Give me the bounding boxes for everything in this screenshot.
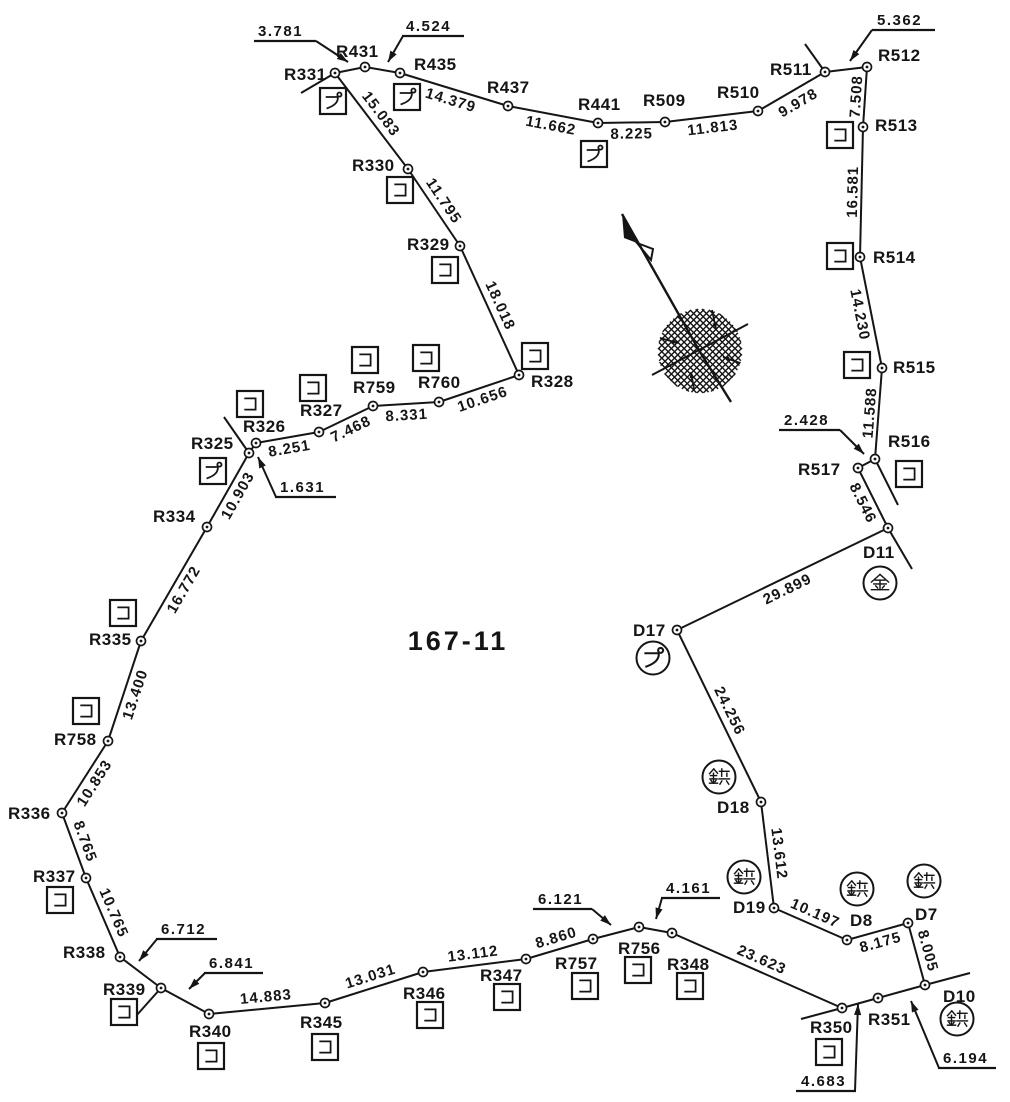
leader-arrow-icon [854,1004,861,1015]
survey-point-center-dot [318,431,321,434]
survey-point-center-dot [119,956,122,959]
point-label-R334: R334 [153,507,196,526]
leader-value: 6.712 [161,921,206,938]
survey-point-center-dot [773,907,776,910]
point-label-R347: R347 [480,966,523,985]
marker-box-ko-icon [110,600,136,626]
survey-point-center-dot [518,374,521,377]
survey-point-center-dot [160,987,163,990]
point-label-R758: R758 [54,730,97,749]
point-label-D11: D11 [863,543,895,562]
point-label-R337: R337 [33,867,76,886]
leader-annotation: 2.428 [779,412,864,454]
marker-box-ko-icon [352,347,378,373]
parcel-number: 167-11 [408,626,509,656]
survey-point-center-dot [671,932,674,935]
marker-box-ko-icon [111,999,137,1025]
distance-label-D8-D7: 8.175 [858,929,904,957]
survey-point-center-dot [248,452,251,455]
survey-point-center-dot [859,256,862,259]
survey-point-center-dot [857,467,860,470]
marker-frame [941,1003,974,1036]
point-label-D7: D7 [915,905,938,924]
marker-circle-byo-icon [728,861,761,894]
survey-points: R331R431R435R437R441R509R510R511R512R513… [8,42,976,1041]
marker-box-pu-icon [581,141,607,167]
leader-annotation: 6.841 [189,955,263,989]
marker-box-ko-icon [522,343,548,369]
marker-frame [198,1043,224,1069]
survey-point-center-dot [206,526,209,529]
point-label-R340: R340 [189,1022,232,1041]
marker-frame [417,1002,443,1028]
point-label-R330: R330 [352,156,395,175]
marker-glyph-byo [740,880,741,882]
point-label-R512: R512 [878,46,921,65]
point-label-R431: R431 [336,42,379,61]
marker-box-ko-icon [413,345,439,371]
survey-point-center-dot [507,105,510,108]
marker-frame [572,973,598,999]
survey-point-center-dot [597,122,600,125]
survey-point-center-dot [107,740,110,743]
marker-glyph-byo [849,892,850,894]
distance-label-R347-R346: 13.112 [447,942,500,965]
point-label-R513: R513 [875,116,918,135]
traverse-lines [62,44,970,1019]
survey-point-center-dot [887,527,890,530]
point-label-R346: R346 [403,984,446,1003]
point-label-R509: R509 [643,91,686,110]
leader-value: 6.194 [943,1050,988,1067]
leader-value: 6.121 [538,891,583,908]
marker-box-ko-icon [625,957,651,983]
survey-point-center-dot [846,939,849,942]
leader-arrow-icon [656,907,663,919]
marker-box-ko-icon [432,257,458,283]
marker-frame [394,84,420,110]
marker-box-ko-icon [312,1034,338,1060]
point-label-R348: R348 [667,955,710,974]
leader-annotation: 4.161 [656,880,720,919]
distance-label-R513-R514: 16.581 [844,166,862,218]
point-label-R325: R325 [191,434,234,453]
marker-circle-byo-icon [908,865,941,898]
point-label-R515: R515 [893,358,936,377]
point-label-R757: R757 [555,954,598,973]
marker-box-ko-icon [47,887,73,913]
point-label-D8: D8 [850,911,873,930]
distance-label-R759-R760: 8.331 [385,406,428,426]
point-label-R756: R756 [618,939,661,958]
marker-frame [110,600,136,626]
leader-value: 4.683 [801,1073,846,1090]
traverse-line-R351-R350 [842,998,878,1008]
leader-arrow-icon [258,457,266,469]
distance-label-D7-D10: 8.005 [914,928,942,974]
marker-box-ko-icon [816,1039,842,1065]
marker-glyph-byo [916,884,917,886]
survey-point-center-dot [907,922,910,925]
marker-glyph-byo [949,1022,950,1024]
leader-annotation: 1.631 [258,457,336,497]
survey-point-center-dot [438,401,441,404]
point-label-D17: D17 [633,621,666,640]
marker-circle-pu-icon [637,642,670,675]
north-arrow-flag [637,243,653,260]
marker-box-ko-icon [237,391,263,417]
leader-value: 4.161 [666,880,711,897]
leader-value: 2.428 [784,412,829,429]
north-arrow [622,214,748,402]
point-label-R517: R517 [798,460,841,479]
survey-point-center-dot [824,71,827,74]
point-label-R336: R336 [8,804,51,823]
marker-frame [200,458,226,484]
point-label-R331: R331 [284,65,327,84]
marker-frame [413,345,439,371]
survey-point-center-dot [877,997,880,1000]
point-label-R441: R441 [578,95,621,114]
marker-frame [494,984,520,1010]
point-label-R511: R511 [770,60,812,79]
survey-point-center-dot [664,121,667,124]
survey-point-center-dot [364,66,367,69]
point-label-R339: R339 [103,980,146,999]
marker-box-pu-icon [320,88,346,114]
marker-box-ko-icon [827,122,853,148]
marker-frame [703,761,736,794]
marker-frame [387,177,413,203]
distance-label-R509-R510: 11.813 [686,116,739,139]
marker-circle-byo-icon [703,761,736,794]
distance-label-R757-R347: 8.860 [533,924,579,952]
traverse-line-R441-R509 [598,122,665,123]
marker-glyph-byo [853,892,854,894]
survey-point-center-dot [399,72,402,75]
point-label-R328: R328 [531,372,574,391]
distance-label-R514-R515: 14.230 [846,288,873,342]
distance-label-R345-R340: 14.883 [239,986,292,1008]
point-label-D19: D19 [733,898,766,917]
marker-box-ko-icon [73,698,99,724]
cadastral-survey-map-page: 14.37911.6628.22511.8139.9787.50816.5811… [0,0,1010,1102]
point-label-R345: R345 [300,1013,343,1032]
marker-circle-kin-icon [864,567,897,600]
marker-box-ko-icon [844,352,870,378]
survey-point-center-dot [760,801,763,804]
boundary-spur-line [925,973,970,985]
marker-frame [827,122,853,148]
point-label-D18: D18 [717,798,750,817]
point-label-R759: R759 [353,378,396,397]
marker-frame [827,243,853,269]
survey-point-center-dot [459,245,462,248]
traverse-line-R759-R760 [373,402,439,406]
survey-point-center-dot [407,168,410,171]
distance-label-R510-R511: 9.978 [776,85,821,121]
leader-value: 6.841 [209,955,254,972]
distance-label-R337-R336: 8.765 [69,819,100,865]
survey-point-center-dot [757,110,760,113]
leader-arrow-icon [850,50,859,61]
leader-annotation: 6.712 [139,921,217,961]
leader-value: 5.362 [877,12,922,29]
point-label-R510: R510 [717,83,760,102]
point-label-R351: R351 [868,1010,911,1029]
survey-point-center-dot [85,877,88,880]
marker-frame [320,88,346,114]
marker-frame [581,141,607,167]
north-arrow-shaft [622,214,700,352]
leader-arrow-icon [388,51,397,62]
marker-frame [841,873,874,906]
marker-box-pu-icon [200,458,226,484]
marker-frame [637,642,670,675]
point-label-R437: R437 [487,78,530,97]
marker-glyph-byo [736,880,737,882]
marker-box-ko-icon [677,973,703,999]
cadastral-survey-diagram: 14.37911.6628.22511.8139.9787.50816.5811… [0,0,1010,1102]
marker-frame [47,887,73,913]
marker-glyph-byo [920,884,921,886]
survey-point-center-dot [676,629,679,632]
marker-frame [111,999,137,1025]
marker-frame [908,865,941,898]
marker-box-ko-icon [494,984,520,1010]
survey-point-center-dot [525,958,528,961]
leader-value: 1.631 [280,479,325,496]
survey-point-center-dot [862,126,865,129]
traverse-line-R511-R512 [825,67,867,72]
leader-arrow-icon [911,1001,919,1013]
marker-glyph-byo [715,780,716,782]
survey-point-center-dot [61,812,64,815]
marker-frame [300,375,326,401]
survey-point-center-dot [255,442,258,445]
point-label-R514: R514 [873,248,916,267]
marker-frame [844,352,870,378]
point-label-D10: D10 [943,987,976,1006]
survey-point-center-dot [866,66,869,69]
distance-label-R512-R513: 7.508 [847,75,867,119]
traverse-line-D11-D17 [677,528,888,630]
point-label-R335: R335 [89,630,132,649]
point-label-R327: R327 [300,401,343,420]
marker-frame [625,957,651,983]
marker-box-ko-icon [896,461,922,487]
marker-box-ko-icon [300,375,326,401]
marker-frame [73,698,99,724]
survey-point-center-dot [422,971,425,974]
survey-point-center-dot [324,1002,327,1005]
point-label-R760: R760 [418,373,461,392]
marker-frame [677,973,703,999]
leader-annotation: 6.121 [533,891,611,925]
point-label-R326: R326 [243,417,286,436]
marker-circle-byo-icon [941,1003,974,1036]
marker-frame [312,1034,338,1060]
marker-box-ko-icon [827,243,853,269]
marker-box-pu-icon [394,84,420,110]
point-label-R338: R338 [63,943,106,962]
marker-frame [896,461,922,487]
marker-frame [432,257,458,283]
marker-glyph-byo [953,1022,954,1024]
survey-point-center-dot [334,72,337,75]
leader-value: 4.524 [406,18,451,35]
marker-frame [237,391,263,417]
survey-point-center-dot [841,1007,844,1010]
survey-point-center-dot [924,984,927,987]
marker-box-ko-icon [387,177,413,203]
boundary-spur-line [875,459,898,505]
point-label-R516: R516 [888,432,931,451]
marker-frame [522,343,548,369]
point-label-R329: R329 [407,235,450,254]
leader-line [855,1004,858,1091]
leader-value: 3.781 [258,23,303,40]
survey-point-center-dot [592,938,595,941]
marker-frame [816,1039,842,1065]
survey-point-center-dot [638,926,641,929]
traverse-line-R340-R339 [161,988,209,1014]
marker-glyph-byo [711,780,712,782]
marker-box-ko-icon [572,973,598,999]
point-label-R435: R435 [414,55,457,74]
distance-label-R441-R509: 8.225 [610,125,653,143]
marker-frame [352,347,378,373]
survey-point-center-dot [372,405,375,408]
traverse-line-R756-R757 [593,927,639,939]
survey-point-center-dot [874,458,877,461]
distance-labels: 14.37911.6628.22511.8139.9787.50816.5811… [69,75,941,1008]
survey-point-center-dot [208,1013,211,1016]
marker-box-ko-icon [417,1002,443,1028]
survey-point-center-dot [140,640,143,643]
survey-point-center-dot [881,367,884,370]
traverse-line-D10-R351 [878,985,925,998]
marker-box-ko-icon [198,1043,224,1069]
distance-label-D18-D19: 13.612 [767,827,790,881]
marker-frame [728,861,761,894]
point-label-R350: R350 [810,1018,853,1037]
leader-annotation: 3.781 [254,23,348,62]
marker-circle-byo-icon [841,873,874,906]
